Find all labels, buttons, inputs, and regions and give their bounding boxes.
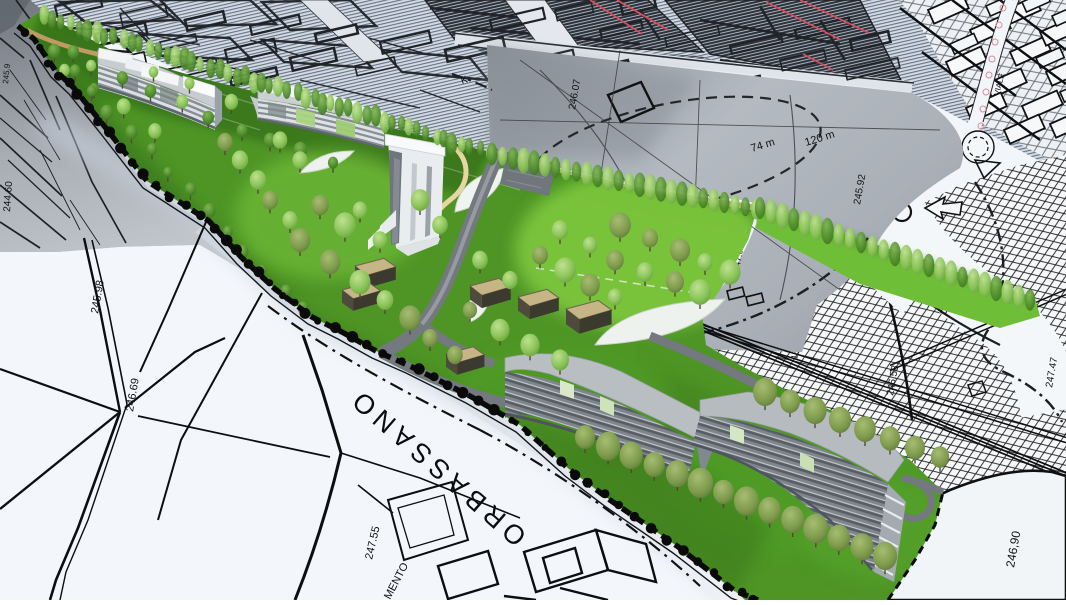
svg-text:244.60: 244.60: [2, 180, 15, 212]
